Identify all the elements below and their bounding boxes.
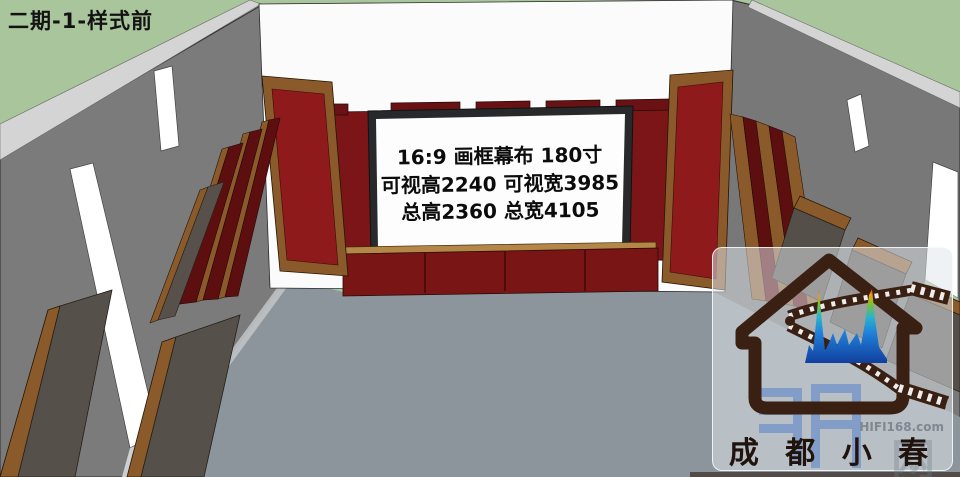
- screen-spec-line2: 可视高2240 可视宽3985: [372, 169, 628, 200]
- screen-spec-label: 16:9 画框幕布 180寸 可视高2240 可视宽3985 总高2360 总宽…: [371, 141, 628, 227]
- brand-text: 成 都 小 春: [713, 428, 952, 472]
- stage-platform: [343, 248, 658, 296]
- render-viewport: 二期-1-样式前 16:9 画框幕布 180寸 可视高2240 可视宽3985 …: [0, 0, 960, 477]
- drawing-title: 二期-1-样式前: [8, 5, 153, 35]
- logo-card: 网 HIFI168.com 成 都 小 春: [712, 247, 953, 471]
- screen-spec-line1: 16:9 画框幕布 180寸: [371, 141, 627, 172]
- screen-spec-line3: 总高2360 总宽4105: [372, 196, 628, 227]
